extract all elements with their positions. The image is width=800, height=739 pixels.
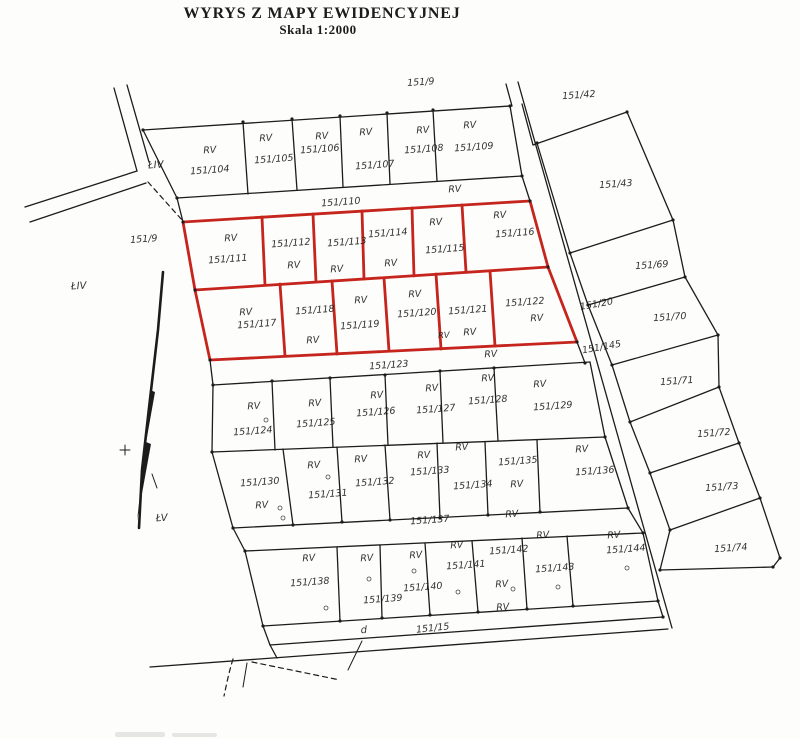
parcel-label: 151/70 (653, 311, 687, 324)
parcel-label: d (360, 625, 368, 636)
parcel-labels-layer: 151/9151/42RV151/104RV151/105RV151/106RV… (70, 76, 748, 636)
parcel-label: 151/145 (581, 339, 622, 357)
parcel-label: 151/112 (271, 237, 311, 251)
parcel-label: 151/138 (290, 576, 330, 590)
parcel-label: 151/128 (468, 394, 508, 408)
parcel-label: RV (496, 601, 511, 613)
parcel-label: 151/133 (410, 465, 450, 479)
parcel-label: 151/126 (356, 406, 396, 420)
parcel-label: RV (354, 294, 369, 306)
parcel-label: 151/139 (363, 593, 403, 607)
parcel-label: 151/113 (327, 236, 367, 250)
cadastral-map-extract: WYRYS Z MAPY EWIDENCYJNEJ Skala 1:2000 (0, 0, 800, 739)
parcel-label: RV (408, 288, 423, 300)
parcel-label: RV (417, 449, 432, 461)
dashed-boundary (148, 182, 182, 220)
parcel-label: 151/122 (505, 296, 545, 310)
parcel-label: RV (455, 441, 470, 453)
parcel-label: 151/117 (237, 318, 277, 332)
parcel-label: RV (239, 306, 254, 318)
parcel-label: RV (463, 119, 478, 131)
parcel-label: 151/43 (599, 178, 633, 191)
parcel-label: RV (495, 578, 510, 590)
parcel-label: 151/108 (404, 143, 444, 157)
parcel-label: 151/141 (446, 559, 486, 573)
parcel-label: 151/42 (562, 89, 596, 102)
parcel-label: 151/69 (635, 259, 669, 272)
parcel-label: RV (463, 326, 478, 338)
parcel-label: 151/71 (660, 375, 694, 388)
parcel-label: 151/130 (240, 476, 280, 490)
parcel-label: 151/144 (606, 543, 646, 557)
parcel-label: RV (409, 549, 424, 561)
parcel-label: RV (247, 400, 262, 412)
parcel-label: 151/123 (369, 359, 409, 373)
parcel-label: RV (484, 348, 499, 360)
parcel-label: 151/109 (454, 141, 494, 155)
parcel-label: RV (607, 529, 622, 541)
scan-artifact (115, 732, 217, 737)
parcel-label: 151/74 (714, 542, 748, 555)
parcel-label: RV (360, 552, 375, 564)
parcel-label: RV (308, 397, 323, 409)
parcel-label: RV (302, 552, 317, 564)
parcel-label: 151/72 (697, 427, 731, 440)
parcel-label: RV (307, 459, 322, 471)
parcel-label: RV (203, 144, 218, 156)
parcel-label: 151/136 (575, 465, 615, 479)
parcel-label: RV (330, 263, 345, 275)
parcel-label: RV (450, 539, 465, 551)
parcel-label: 151/20 (579, 296, 614, 313)
parcel-label: ŁIV (147, 159, 165, 171)
parcel-label: 151/118 (295, 304, 335, 318)
parcel-label: RV (510, 478, 525, 490)
drainage-ditch-symbol (120, 272, 163, 528)
parcel-label: RV (429, 216, 444, 228)
parcel-label: 151/121 (448, 304, 488, 318)
parcel-label: 151/129 (533, 400, 573, 414)
parcel-label: RV (287, 259, 302, 271)
parcel-label: RV (530, 312, 545, 324)
parcel-label: 151/73 (705, 481, 739, 494)
parcel-label: RV (370, 389, 385, 401)
parcel-label: 151/131 (308, 488, 348, 502)
parcel-label: RV (354, 453, 369, 465)
parcel-label: RV (493, 209, 508, 221)
map-scale: Skala 1:2000 (279, 22, 356, 37)
parcel-label: RV (416, 124, 431, 136)
map-canvas: WYRYS Z MAPY EWIDENCYJNEJ Skala 1:2000 (0, 0, 800, 739)
parcel-label: 151/119 (340, 319, 380, 333)
left-road-lines (25, 85, 182, 222)
parcel-label: 151/110 (321, 196, 361, 210)
parcel-label: RV (306, 334, 321, 346)
parcel-label: RV (536, 529, 551, 541)
parcel-label: RV (359, 126, 374, 138)
parcel-label: RV (533, 378, 548, 390)
parcel-label: 151/115 (425, 243, 465, 257)
parcel-label: 151/104 (190, 164, 230, 178)
parcel-label: 151/127 (416, 403, 456, 417)
parcel-label: 151/114 (368, 227, 408, 241)
parcel-label: RV (448, 183, 463, 195)
page-title: WYRYS Z MAPY EWIDENCYJNEJ (183, 5, 460, 22)
parcel-label: RV (425, 382, 440, 394)
parcel-label: RV (575, 443, 590, 455)
parcel-label: 151/125 (296, 417, 336, 431)
parcel-label: RV (384, 257, 399, 269)
parcel-label: RV (315, 130, 330, 142)
parcel-label: 151/111 (208, 253, 248, 267)
parcel-label: 151/9 (407, 76, 435, 89)
parcel-label: 151/9 (130, 233, 158, 246)
parcel-label: 151/120 (397, 307, 437, 321)
parcel-label: RV (438, 331, 452, 342)
right-parcel-column (522, 104, 780, 570)
parcel-label: 151/116 (495, 227, 535, 241)
parcel-label: ŁIV (70, 280, 88, 292)
parcel-label: 151/132 (355, 476, 395, 490)
parcel-label: RV (259, 132, 274, 144)
parcel-label: RV (255, 499, 270, 511)
parcel-label: RV (224, 232, 239, 244)
parcel-label: 151/140 (403, 581, 443, 595)
parcel-label: 151/124 (233, 425, 273, 439)
parcel-label: RV (505, 508, 520, 520)
parcel-label: 151/15 (416, 621, 450, 635)
parcel-label: 151/106 (300, 143, 340, 157)
parcel-label: 151/105 (254, 153, 294, 167)
parcel-label: 151/137 (410, 514, 450, 528)
parcel-label: 151/143 (535, 562, 575, 576)
parcel-label: ŁV (155, 513, 170, 525)
highlighted-parcel-block (183, 201, 577, 360)
parcel-label: 151/135 (498, 455, 538, 469)
parcel-label: RV (481, 372, 496, 384)
bottom-strips (150, 601, 668, 696)
